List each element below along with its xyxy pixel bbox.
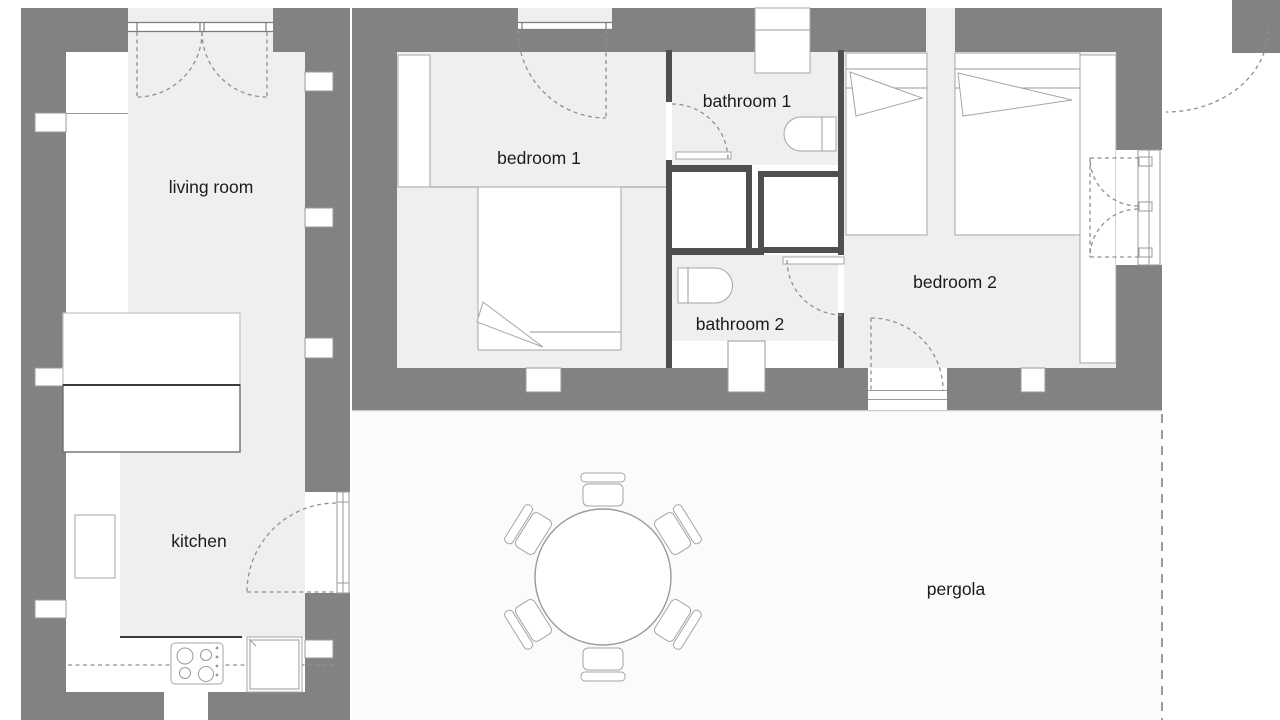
entrance-porch [128,8,273,22]
main-building [352,8,1162,410]
storage-counter-blocks [63,313,240,452]
knob [216,656,219,659]
window-icon [35,113,66,132]
counter-block [63,385,240,452]
pergola-slab [352,410,1162,720]
room-label-bathroom2: bathroom 2 [696,314,785,334]
toilet-icon [784,117,836,151]
window-icon [35,600,66,618]
partition [758,171,764,255]
toilet-bowl [678,268,732,303]
wall [305,52,350,720]
counter-block [63,313,240,385]
window-icon [526,368,561,392]
stove-cooktop-icon [171,643,223,684]
appliance-icon [75,515,115,578]
partition [666,50,672,102]
head-window [926,8,955,52]
bed-icon [955,53,1080,235]
partition [666,165,752,172]
kitchen-cabinet-icon [247,637,302,692]
rear-opening [164,692,208,720]
partition [838,313,844,368]
shower-enclosure [764,177,838,247]
wardrobe-icon [398,55,430,187]
chair-icon [581,473,625,506]
knob [216,674,219,677]
chimney-outline [755,8,810,73]
pergola-area [352,410,1162,720]
sink-counter-icon [783,257,844,264]
window-icon [305,208,333,227]
cooktop-outline [171,643,223,684]
rear-door [728,341,765,392]
window-icon [305,640,333,658]
wall [352,52,397,368]
room-label-bedroom1: bedroom 1 [497,148,581,168]
floor-plan-drawing: living room kitchen bedroom 1 bathroom 1… [0,0,1280,720]
room-label-kitchen: kitchen [171,531,226,551]
dining-table-icon [535,509,671,645]
left-building [21,8,350,720]
toilet-bowl [784,117,836,151]
window-icon [1021,368,1045,392]
partition [666,160,672,368]
chimney-duct [755,8,810,73]
wall [1232,0,1280,53]
shower-enclosure [672,172,746,248]
sink-counter-icon [676,152,731,159]
bed-icon [477,187,621,350]
bed-icon [846,53,927,235]
knob [216,647,219,650]
wall [21,8,128,52]
toilet-icon [678,268,732,303]
partition [838,50,844,255]
partition [758,171,844,177]
door-opening [868,368,947,410]
room-label-bathroom1: bathroom 1 [703,91,792,111]
exterior-gate [1166,0,1280,112]
door-frame [518,22,612,30]
knob [216,665,219,668]
chair-icon [581,648,625,681]
bedroom1-porch [518,8,612,22]
room-label-bedroom2: bedroom 2 [913,272,997,292]
window-icon [35,368,66,386]
partition [758,247,844,253]
room-label-living-room: living room [169,177,254,197]
window-icon [305,72,333,91]
partition [746,165,752,255]
floor-plan: living room kitchen bedroom 1 bathroom 1… [0,0,1280,720]
window-icon [305,338,333,358]
wall [273,8,350,52]
wardrobe-icon [1080,55,1116,363]
partition [666,248,758,255]
room-label-pergola: pergola [927,579,986,599]
